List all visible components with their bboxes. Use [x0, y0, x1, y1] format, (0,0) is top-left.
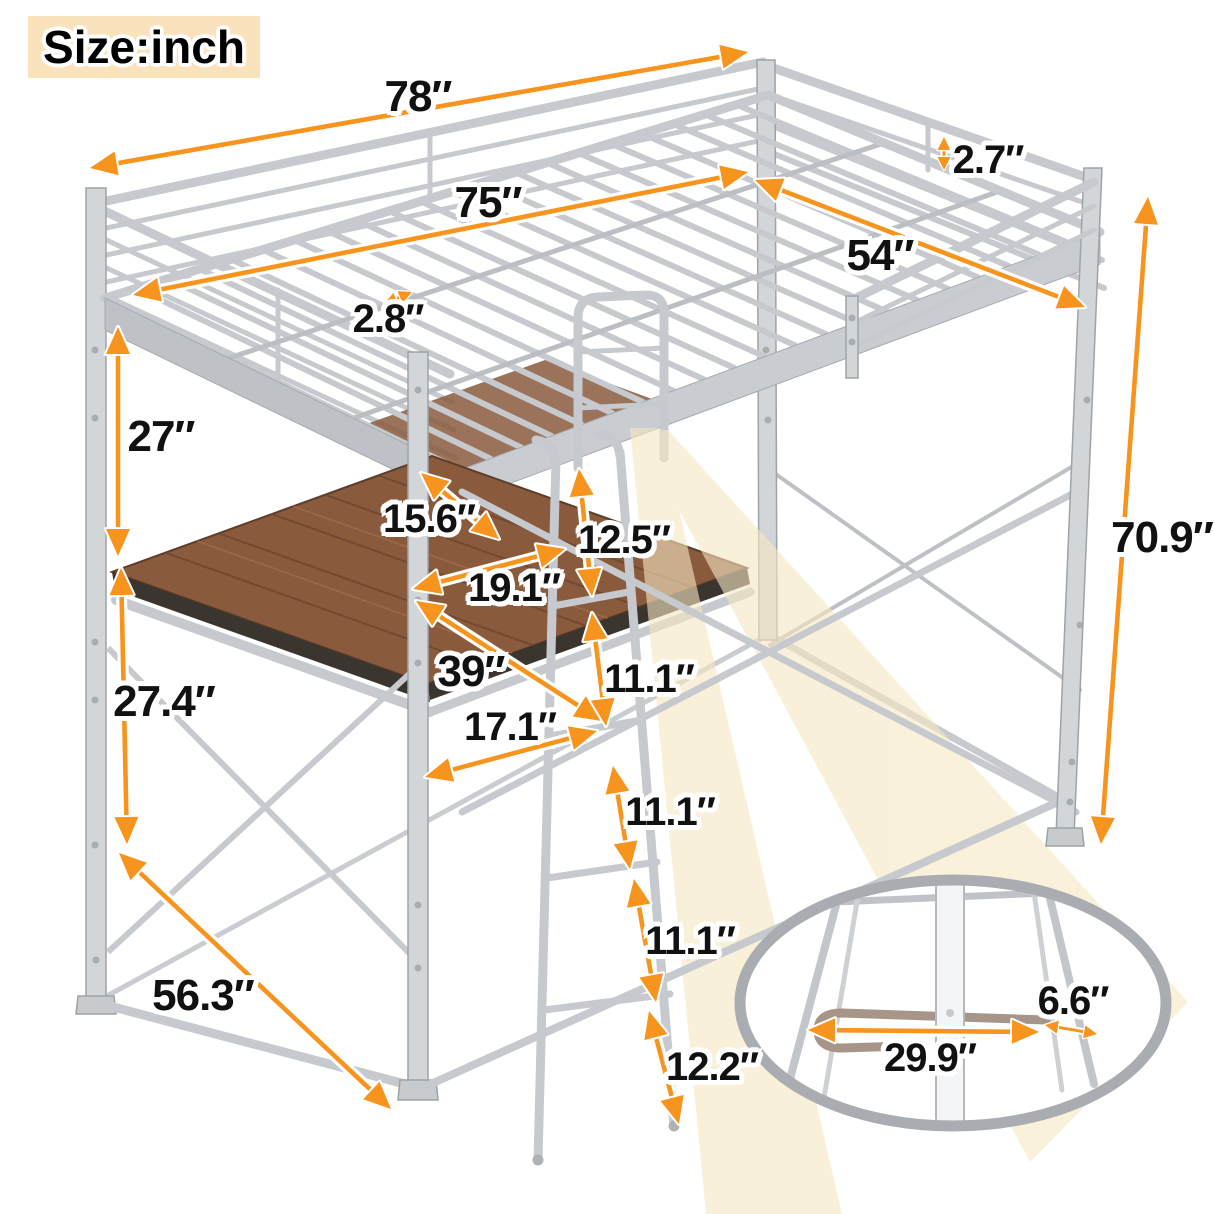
dim-label-upper-clearance: 27″	[127, 415, 194, 459]
bed-illustration	[0, 0, 1214, 1214]
dim-label-footrest-width: 29.9″	[884, 1038, 976, 1078]
dim-arrow	[106, 327, 130, 556]
dim-label-desk-depth-top: 19.1″	[468, 568, 560, 608]
dim-label-slat-gap: 2.8″	[353, 299, 424, 339]
dim-label-inner-width: 54″	[846, 234, 913, 278]
dim-label-rail-gap: 2.7″	[953, 140, 1024, 180]
dim-label-overall-length: 78″	[384, 75, 451, 119]
dim-label-ladder-step-bottom: 12.2″	[666, 1047, 758, 1087]
dim-label-inner-length: 75″	[454, 181, 521, 225]
dim-label-base-depth: 56.3″	[152, 974, 254, 1018]
dim-label-desk-depth-bottom: 17.1″	[464, 707, 556, 747]
loft-bed-size-diagram: Size:inch 78″ 75″ 2.7″ 54″ 2.8″ 27″ 15.6…	[0, 0, 1214, 1214]
dim-label-desk-length: 39″	[437, 650, 504, 694]
inset-post	[936, 876, 964, 1122]
dim-label-ladder-step-2: 11.1″	[604, 659, 694, 699]
dim-label-desk-clearance: 27.4″	[113, 680, 215, 724]
dim-label-ladder-step-top: 12.5″	[578, 520, 670, 560]
dim-label-overall-height: 70.9″	[1111, 516, 1213, 560]
dim-label-footrest-offset: 6.6″	[1038, 981, 1109, 1021]
dim-label-desk-overhang: 15.6″	[383, 499, 475, 539]
dim-label-ladder-step-4: 11.1″	[645, 921, 735, 961]
dim-label-ladder-step-3: 11.1″	[625, 792, 715, 832]
size-unit-badge: Size:inch	[28, 16, 260, 78]
